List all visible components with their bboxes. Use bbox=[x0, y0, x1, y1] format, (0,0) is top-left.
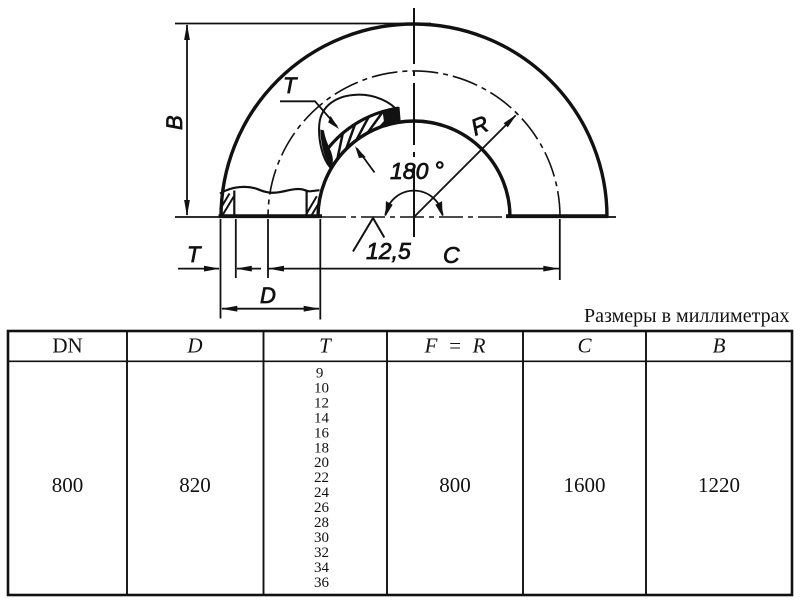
svg-text:Размеры в миллиметрах: Размеры в миллиметрах bbox=[584, 305, 789, 327]
svg-text:D: D bbox=[186, 334, 202, 358]
svg-text:DN: DN bbox=[52, 334, 82, 358]
svg-text:R: R bbox=[467, 110, 492, 140]
svg-text:B: B bbox=[162, 115, 187, 130]
svg-text:12,5: 12,5 bbox=[366, 238, 411, 264]
svg-text:800: 800 bbox=[439, 473, 471, 497]
svg-text:1220: 1220 bbox=[698, 473, 740, 497]
svg-text:B: B bbox=[713, 334, 726, 358]
svg-text:T: T bbox=[187, 242, 202, 267]
svg-text:C: C bbox=[443, 242, 460, 268]
svg-text:1600: 1600 bbox=[564, 473, 606, 497]
svg-text:T: T bbox=[319, 334, 332, 358]
svg-text:800: 800 bbox=[52, 473, 84, 497]
svg-text:T: T bbox=[283, 73, 298, 98]
svg-text:C: C bbox=[577, 334, 592, 358]
svg-text:820: 820 bbox=[179, 473, 211, 497]
svg-text:9 1012141618202224262830323436: 9 1012141618202224262830323436 bbox=[314, 366, 330, 591]
svg-text:D: D bbox=[260, 283, 276, 308]
svg-text:180°: 180° bbox=[390, 157, 444, 185]
svg-text:F = R: F = R bbox=[424, 334, 486, 358]
